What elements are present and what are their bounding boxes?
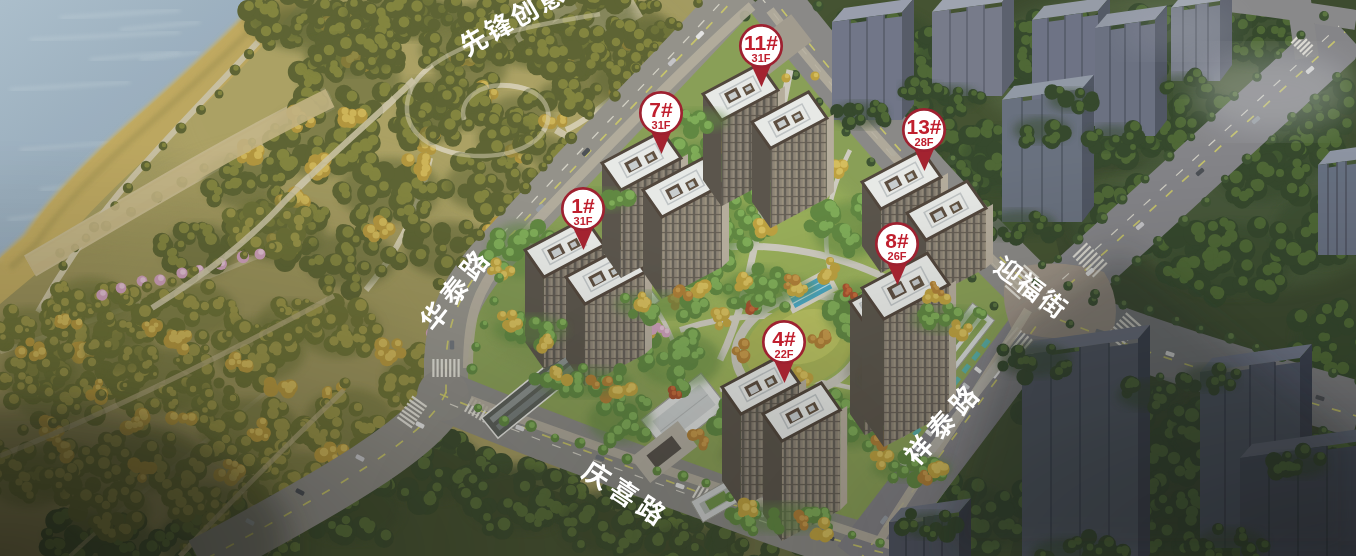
svg-text:4#: 4# — [772, 327, 796, 350]
svg-text:11#: 11# — [744, 31, 778, 54]
svg-text:26F: 26F — [888, 250, 907, 262]
svg-text:8#: 8# — [885, 229, 909, 252]
svg-text:28F: 28F — [915, 136, 934, 148]
svg-text:7#: 7# — [649, 98, 673, 121]
svg-text:13#: 13# — [906, 115, 941, 138]
svg-text:1#: 1# — [571, 194, 595, 217]
svg-text:22F: 22F — [775, 348, 794, 360]
svg-text:31F: 31F — [652, 119, 671, 131]
svg-text:31F: 31F — [752, 52, 771, 64]
svg-text:31F: 31F — [574, 215, 593, 227]
